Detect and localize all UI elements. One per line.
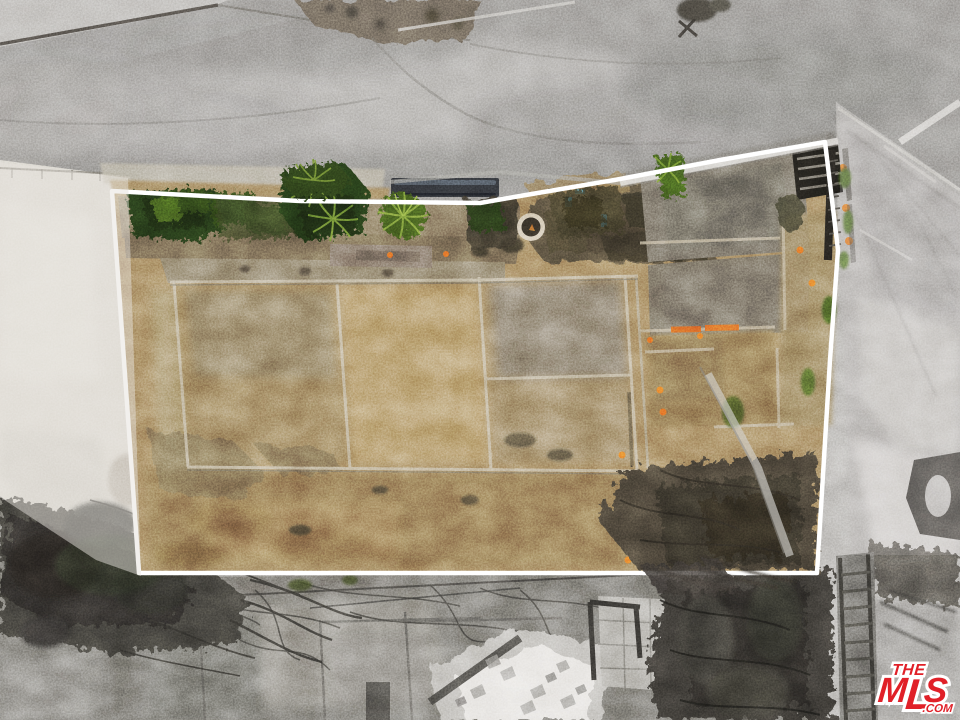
svg-text:.COM: .COM: [922, 703, 953, 715]
